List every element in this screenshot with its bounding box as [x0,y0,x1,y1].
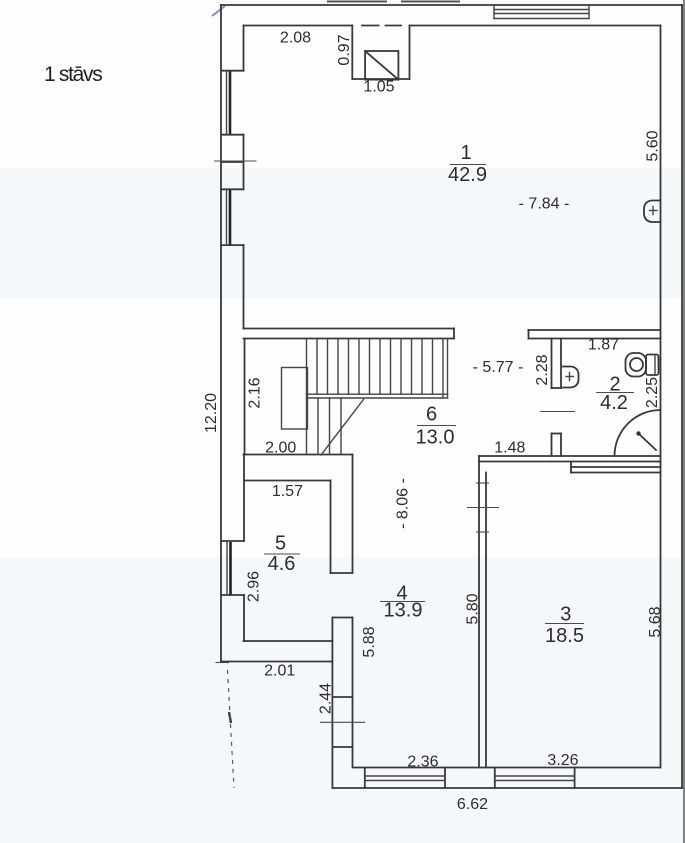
svg-text:42.9: 42.9 [448,164,487,186]
svg-text:2.44: 2.44 [318,683,335,714]
svg-text:2.25: 2.25 [644,377,661,408]
svg-text:1: 1 [460,142,471,164]
svg-text:- 5.77 -: - 5.77 - [473,359,524,376]
svg-text:4.6: 4.6 [268,553,296,575]
svg-text:5: 5 [275,533,286,555]
svg-text:3: 3 [560,604,571,626]
svg-text:4.2: 4.2 [600,392,628,414]
svg-text:18.5: 18.5 [545,625,584,647]
svg-text:5.60: 5.60 [645,130,662,161]
svg-text:5.88: 5.88 [361,626,378,657]
svg-text:2.16: 2.16 [247,377,264,408]
svg-text:6.62: 6.62 [457,796,488,813]
svg-text:13.0: 13.0 [416,427,455,449]
svg-text:- 7.84 -: - 7.84 - [519,196,570,213]
svg-text:6: 6 [426,404,437,426]
svg-text:1 stāvs: 1 stāvs [44,63,102,86]
svg-text:1.87: 1.87 [588,337,619,354]
svg-text:0.97: 0.97 [336,34,353,65]
svg-text:1.05: 1.05 [363,79,394,96]
svg-text:2.36: 2.36 [407,754,438,771]
svg-text:3.26: 3.26 [547,752,578,769]
svg-text:2.01: 2.01 [264,663,295,680]
svg-text:5.68: 5.68 [647,606,664,637]
svg-text:5.80: 5.80 [465,593,482,624]
svg-text:2.08: 2.08 [280,30,311,47]
svg-text:2.96: 2.96 [246,571,263,602]
svg-text:2.28: 2.28 [534,354,551,385]
svg-text:13.9: 13.9 [384,600,423,622]
svg-text:- 8.06 -: - 8.06 - [395,478,412,529]
svg-text:1.57: 1.57 [272,483,303,500]
svg-text:12.20: 12.20 [203,393,220,433]
svg-text:2.00: 2.00 [265,440,296,457]
svg-text:1.48: 1.48 [494,440,525,457]
